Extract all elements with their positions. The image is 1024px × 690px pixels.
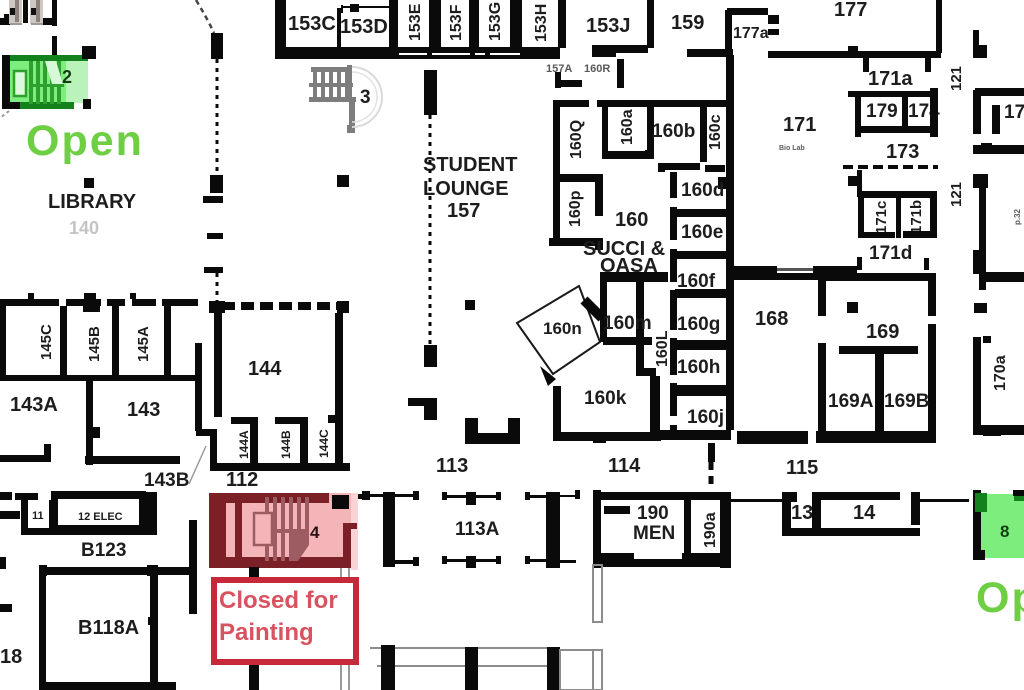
- svg-text:113: 113: [436, 455, 468, 477]
- svg-text:190: 190: [637, 503, 669, 524]
- svg-text:LIBRARY: LIBRARY: [48, 191, 137, 213]
- svg-text:160L: 160L: [654, 330, 671, 367]
- svg-text:169A: 169A: [828, 391, 874, 412]
- svg-text:153E: 153E: [407, 3, 424, 41]
- svg-text:160j: 160j: [687, 407, 724, 428]
- svg-text:153G: 153G: [487, 2, 504, 41]
- svg-text:160k: 160k: [584, 388, 627, 409]
- svg-text:STUDENT: STUDENT: [423, 154, 517, 176]
- svg-text:113A: 113A: [455, 519, 500, 540]
- svg-text:121: 121: [948, 182, 965, 207]
- svg-text:144C: 144C: [317, 429, 331, 458]
- svg-text:144B: 144B: [279, 430, 293, 459]
- svg-text:171: 171: [783, 114, 816, 136]
- svg-text:173: 173: [886, 141, 919, 163]
- svg-text:160f: 160f: [677, 271, 716, 292]
- svg-text:13: 13: [791, 502, 813, 524]
- svg-text:143: 143: [127, 399, 160, 421]
- svg-text:4: 4: [310, 523, 320, 542]
- svg-text:157A: 157A: [546, 63, 572, 75]
- svg-text:145C: 145C: [38, 324, 55, 360]
- svg-text:153J: 153J: [586, 15, 631, 37]
- svg-text:160b: 160b: [652, 121, 695, 142]
- svg-text:160: 160: [615, 209, 648, 231]
- svg-text:160c: 160c: [707, 114, 724, 150]
- svg-text:170a: 170a: [992, 355, 1009, 391]
- svg-text:157: 157: [447, 200, 480, 222]
- svg-text:Bio Lab: Bio Lab: [779, 145, 805, 152]
- svg-text:171b: 171b: [908, 200, 925, 234]
- svg-text:144: 144: [248, 358, 282, 380]
- svg-text:114: 114: [608, 455, 641, 477]
- svg-text:179: 179: [866, 101, 898, 122]
- svg-text:159: 159: [671, 12, 704, 34]
- svg-text:160m: 160m: [603, 313, 652, 334]
- svg-text:14: 14: [853, 502, 876, 524]
- svg-text:160h: 160h: [677, 357, 720, 378]
- svg-text:171a: 171a: [868, 68, 913, 90]
- svg-text:115: 115: [786, 457, 818, 479]
- svg-text:MEN: MEN: [633, 523, 675, 544]
- svg-text:3: 3: [360, 87, 371, 108]
- svg-text:160g: 160g: [677, 314, 720, 335]
- svg-text:160Q: 160Q: [568, 120, 585, 159]
- svg-text:160n: 160n: [543, 319, 582, 338]
- svg-text:Open: Open: [976, 574, 1024, 622]
- svg-text:Open: Open: [26, 117, 144, 165]
- svg-text:143B: 143B: [144, 470, 189, 491]
- svg-text:18: 18: [0, 646, 22, 668]
- svg-text:153H: 153H: [533, 4, 550, 42]
- svg-text:153C: 153C: [288, 13, 336, 35]
- svg-text:168: 168: [755, 308, 788, 330]
- svg-text:B118A: B118A: [78, 617, 139, 639]
- svg-text:160p: 160p: [567, 190, 584, 227]
- svg-text:145A: 145A: [135, 326, 152, 362]
- svg-text:153F: 153F: [448, 4, 465, 41]
- svg-text:2: 2: [62, 67, 72, 87]
- svg-text:160R: 160R: [584, 63, 610, 75]
- svg-text:112: 112: [226, 469, 258, 491]
- svg-text:144A: 144A: [237, 430, 251, 459]
- svg-text:11: 11: [32, 510, 44, 522]
- svg-text:145B: 145B: [86, 326, 103, 362]
- svg-text:B123: B123: [81, 540, 126, 561]
- svg-text:140: 140: [69, 218, 99, 238]
- svg-text:175: 175: [1004, 102, 1024, 123]
- svg-text:169: 169: [866, 321, 899, 343]
- svg-text:143A: 143A: [10, 394, 58, 416]
- svg-text:177: 177: [834, 0, 867, 21]
- svg-text:160e: 160e: [681, 222, 723, 243]
- svg-text:12 ELEC: 12 ELEC: [78, 511, 123, 523]
- svg-text:160d: 160d: [681, 180, 724, 201]
- svg-text:121: 121: [948, 66, 965, 91]
- svg-text:169B: 169B: [884, 391, 929, 412]
- svg-text:160a: 160a: [619, 109, 636, 145]
- svg-text:8: 8: [1000, 522, 1009, 541]
- svg-text:171c: 171c: [873, 201, 890, 234]
- svg-text:177a: 177a: [733, 25, 769, 42]
- svg-text:Painting: Painting: [219, 619, 314, 646]
- svg-text:p.32: p.32: [1013, 208, 1022, 225]
- svg-text:190a: 190a: [702, 512, 719, 548]
- svg-text:171d: 171d: [869, 243, 912, 264]
- svg-text:Closed for: Closed for: [219, 587, 338, 614]
- svg-text:153D: 153D: [340, 16, 388, 38]
- svg-text:LOUNGE: LOUNGE: [423, 178, 509, 200]
